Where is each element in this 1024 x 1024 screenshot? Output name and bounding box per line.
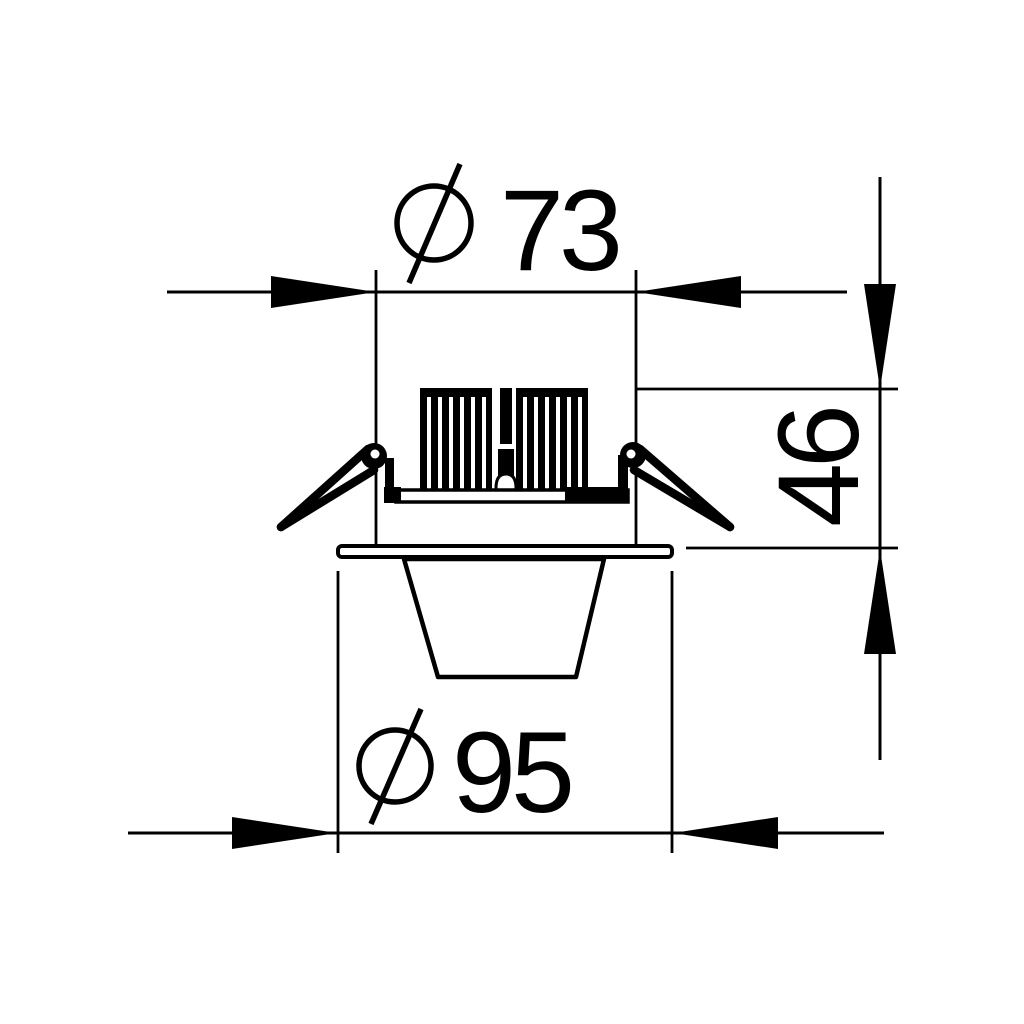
diameter-symbol	[359, 709, 431, 824]
technical-drawing-page: 73 46 95	[0, 0, 1024, 1024]
spring-bracket-left	[385, 458, 394, 494]
arrowhead-left	[232, 817, 337, 849]
spring-arm-lower	[281, 470, 374, 527]
dim-right-value: 46	[755, 409, 883, 527]
spring-arm-lower	[634, 470, 730, 527]
heatsink-fins-right	[516, 388, 588, 491]
arrowhead-left	[271, 276, 376, 308]
downlight-fixture	[281, 388, 730, 677]
reflector-cone	[404, 559, 604, 677]
arrowhead-right	[636, 276, 741, 308]
dim-top-value: 73	[500, 167, 618, 295]
heatsink-fins-left	[420, 388, 492, 491]
diameter-symbol	[397, 164, 471, 283]
heatsink-center-post	[496, 388, 516, 492]
spring-pivot-hole	[371, 450, 380, 459]
dimension-right-height: 46	[636, 177, 898, 760]
diameter-symbol-slash	[409, 164, 460, 283]
arrowhead-bottom	[864, 549, 896, 654]
spring-pivot-hole	[627, 450, 636, 459]
drawing-canvas: 73 46 95	[0, 0, 1024, 1024]
trim-flange	[338, 546, 672, 557]
arrowhead-top	[864, 284, 896, 389]
mounting-spring-left	[281, 443, 387, 527]
arrowhead-right	[673, 817, 778, 849]
diameter-symbol-slash	[371, 709, 421, 824]
dim-bottom-value: 95	[452, 709, 571, 837]
heatsink	[420, 388, 588, 492]
